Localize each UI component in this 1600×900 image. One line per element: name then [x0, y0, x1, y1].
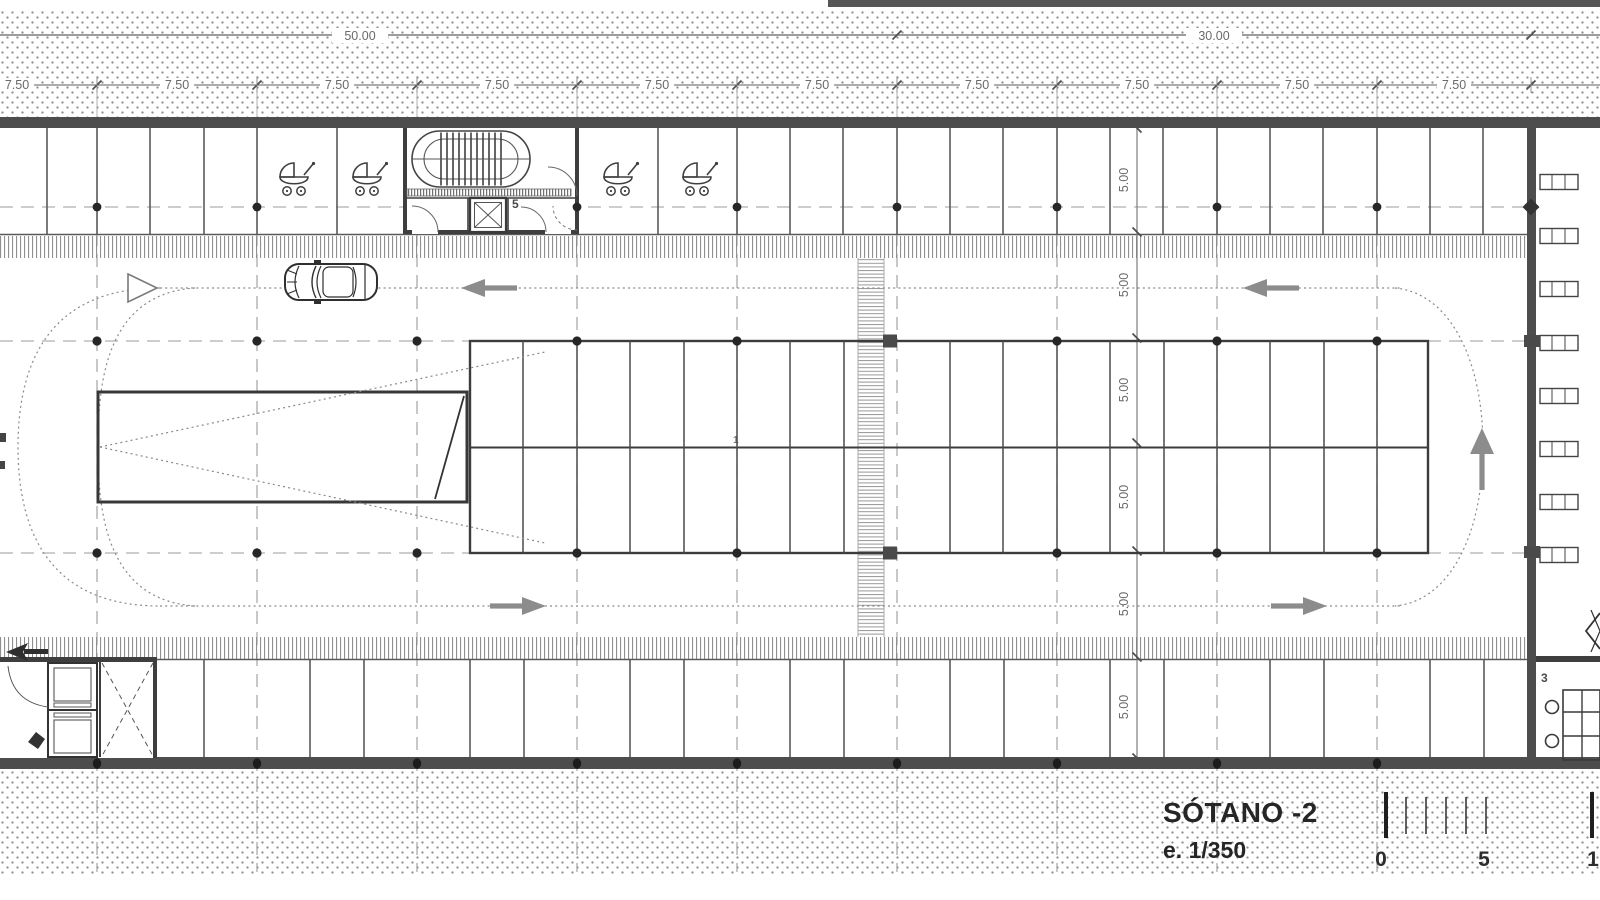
stroller-icon [353, 162, 388, 195]
car-icon [285, 260, 377, 304]
dim-total-left: 50.00 [344, 29, 375, 43]
column-square [883, 335, 897, 348]
dim-segment-label: 7.50 [805, 78, 829, 92]
stair-elevator-cores [0, 128, 579, 758]
column-dot-icon [1373, 758, 1381, 768]
plan-title: SÓTANO -2 [1163, 797, 1318, 828]
column-dot-icon [1213, 203, 1222, 212]
column-dot-icon [253, 758, 261, 768]
earth-band-bottom [0, 770, 1600, 876]
column-dot-icon [93, 758, 101, 768]
column-dot-icon [1372, 336, 1381, 345]
door-opening [545, 230, 571, 234]
ramp-fan-line [100, 447, 545, 543]
column-dot-icon [1213, 758, 1221, 768]
storage-box [1540, 548, 1578, 563]
parking-stalls [47, 128, 1484, 757]
column-dot-icon [1212, 336, 1221, 345]
column-dot-icon [573, 203, 582, 212]
earth-band-top [0, 10, 1600, 118]
dim-vertical-label: 5.00 [1117, 695, 1131, 719]
storage-box [1540, 389, 1578, 404]
ramp-break-line [435, 396, 464, 499]
column-dot-icon [253, 203, 262, 212]
column-dot-icon [1052, 548, 1061, 557]
storage-box [1540, 175, 1578, 190]
section-strip-top [828, 0, 1600, 7]
ramp-outline [98, 392, 467, 502]
stroller-part [703, 190, 705, 192]
parking-floor-plan: 7.507.507.507.507.507.507.507.507.507.50… [0, 0, 1600, 900]
u-turn-left [18, 288, 160, 606]
office-chair [1546, 735, 1559, 748]
stroller-part [280, 177, 308, 184]
stroller-part [683, 177, 711, 184]
column-dot-icon [572, 548, 581, 557]
column-dot-icon [893, 203, 902, 212]
ramp-direction-arrow-icon [128, 274, 157, 302]
column-dot-icon [1053, 203, 1062, 212]
storage-box [1540, 282, 1578, 297]
stroller-part [373, 190, 375, 192]
core-top-wall-left [403, 128, 407, 234]
wall-bottom [0, 757, 1600, 769]
dim-segment-label: 7.50 [1442, 78, 1466, 92]
column-dot-icon [252, 548, 261, 557]
dim-segment-label: 7.50 [485, 78, 509, 92]
column-dot-icon [732, 336, 741, 345]
stroller-part [353, 163, 367, 177]
column-dot-icon [733, 758, 741, 768]
ramp-feed-top [98, 288, 195, 447]
column-square [1524, 546, 1540, 558]
stroller-part [359, 190, 361, 192]
flow-arrow-left-icon-shaft [1267, 285, 1299, 290]
flow-arrow-left-icon [1243, 279, 1267, 297]
core-top-wall-right [575, 128, 579, 234]
wall-top [0, 117, 1600, 128]
flow-arrow-right-icon-shaft [490, 603, 522, 608]
stroller-part [304, 164, 313, 175]
storage-box [1540, 495, 1578, 510]
car-mirror [314, 260, 321, 264]
scale-bar-5: 5 [1478, 848, 1490, 871]
column-dot-icon [92, 548, 101, 557]
dim-segment-label: 7.50 [1285, 78, 1309, 92]
stroller-part [300, 190, 302, 192]
column-square [883, 547, 897, 560]
stroller-part [715, 162, 718, 165]
stroller-part [353, 177, 381, 184]
flow-arrow-right-icon [522, 597, 546, 615]
grid-note: 1 [733, 435, 739, 446]
room-number-stair-core: 5 [512, 197, 519, 211]
column-dot-icon [572, 336, 581, 345]
ramp-fan-line [100, 352, 545, 447]
car-mirror [314, 300, 321, 304]
stroller-icon [280, 162, 315, 195]
entry-arrow-icon-shaft [24, 649, 48, 654]
stroller-part [689, 190, 691, 192]
stroller-part [628, 164, 637, 175]
flow-arrow-left-icon-shaft [485, 285, 517, 290]
column-dot-icon [412, 336, 421, 345]
column-dot-icon [732, 548, 741, 557]
stroller-icon [683, 162, 718, 195]
dim-vertical-label: 5.00 [1117, 592, 1131, 616]
stroller-part [683, 163, 697, 177]
ramp-feed-bottom [98, 447, 195, 606]
dim-segment-label: 7.50 [5, 78, 29, 92]
bowtie-mark-icon [1586, 613, 1600, 649]
walkway-bottom-hatch [0, 637, 1527, 659]
core-lobby-hatch [407, 189, 571, 196]
dim-segment-label: 7.50 [645, 78, 669, 92]
circulation-paths [18, 274, 1494, 615]
door-opening [412, 230, 438, 234]
column-dot-icon [1212, 548, 1221, 557]
stroller-part [385, 162, 388, 165]
stroller-part [286, 190, 288, 192]
bowtie-mark-icon [1591, 610, 1600, 652]
room-number-office: 3 [1541, 671, 1548, 685]
office-chair [1546, 701, 1559, 714]
storage-box [1540, 442, 1578, 457]
column-dot-icon [733, 203, 742, 212]
storage-box [1540, 229, 1578, 244]
dim-vertical-label: 5.00 [1117, 378, 1131, 402]
dim-segment-label: 7.50 [965, 78, 989, 92]
column-dot-icon [412, 548, 421, 557]
flow-arrow-left-icon [461, 279, 485, 297]
stroller-icon [604, 162, 639, 195]
scale-bar-10-cropped: 1 [1587, 848, 1599, 871]
flow-arrow-right-icon [1303, 597, 1327, 615]
dim-segment-label: 7.50 [165, 78, 189, 92]
car-part [285, 264, 377, 300]
scale-bar-0: 0 [1375, 848, 1387, 871]
stroller-part [312, 162, 315, 165]
column-dot-icon [93, 203, 102, 212]
walkway-top-hatch [0, 236, 1527, 258]
stroller-part [624, 190, 626, 192]
column-dot-icon [92, 336, 101, 345]
flow-arrow-up-icon [1470, 428, 1494, 454]
dim-total-right: 30.00 [1198, 29, 1229, 43]
column-dot-icon [1372, 548, 1381, 557]
cropped-edge-mark [0, 433, 6, 442]
stroller-part [604, 177, 632, 184]
core-bottom-wall-right [153, 657, 157, 758]
stroller-part [604, 163, 618, 177]
dim-segment-label: 7.50 [325, 78, 349, 92]
dim-segment-label: 7.50 [1125, 78, 1149, 92]
dim-vertical-label: 5.00 [1117, 485, 1131, 509]
stroller-part [377, 164, 386, 175]
perimeter-walls [0, 117, 1600, 769]
structural-gridlines [0, 76, 1527, 872]
dim-vertical-label: 5.00 [1117, 168, 1131, 192]
column-dot-icon [1053, 758, 1061, 768]
floor-plan-canvas: 7.507.507.507.507.507.507.507.507.507.50… [0, 0, 1600, 900]
column-square [1524, 335, 1540, 347]
column-dot-icon [252, 336, 261, 345]
stroller-part [610, 190, 612, 192]
column-dot-icon [413, 758, 421, 768]
cropped-edge-mark [0, 461, 5, 469]
column-dot-icon [573, 758, 581, 768]
stroller-part [280, 163, 294, 177]
stroller-part [707, 164, 716, 175]
earth-hatch-bands [0, 0, 1600, 876]
column-dot-icon [1052, 336, 1061, 345]
storage-box [1540, 336, 1578, 351]
dim-vertical-label: 5.00 [1117, 273, 1131, 297]
plan-scale: e. 1/350 [1163, 837, 1246, 863]
stroller-part [636, 162, 639, 165]
column-diamond [1523, 199, 1540, 216]
column-dot-icon [1373, 203, 1382, 212]
office-wall-top [1536, 656, 1600, 662]
flow-arrow-up-icon-shaft [1479, 454, 1484, 490]
column-dot-icon [893, 758, 901, 768]
flow-arrow-right-icon-shaft [1271, 603, 1303, 608]
